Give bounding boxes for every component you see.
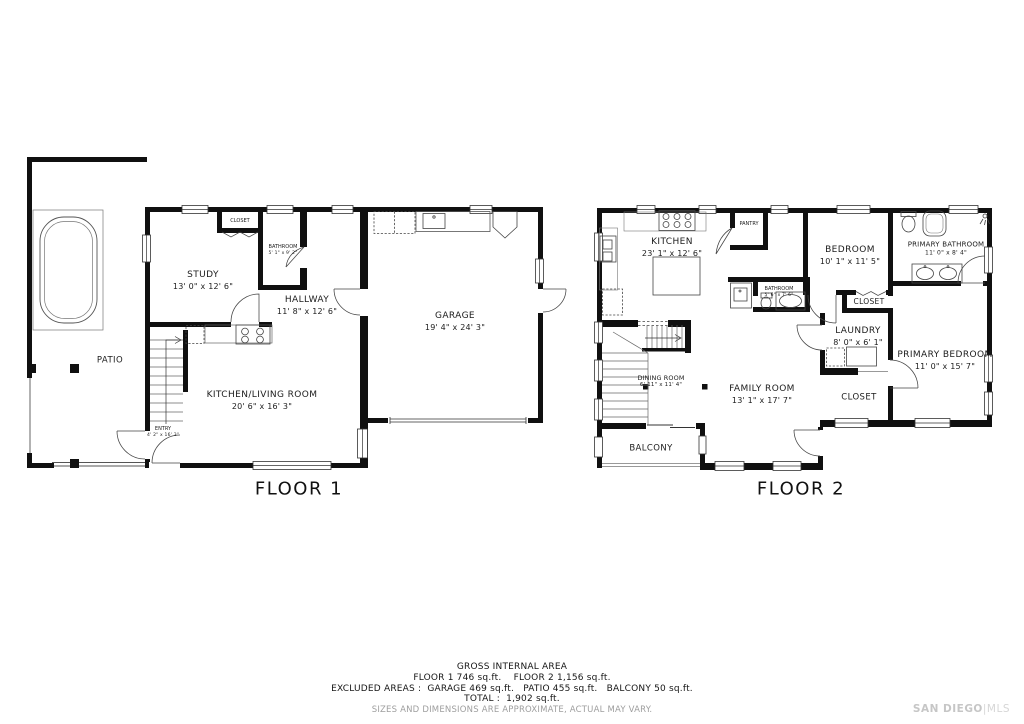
room-label-bathroom-f2: BATHROOM 5' 6" x 7' 6" [764,286,793,298]
garage-door [388,417,528,425]
room-label-primary-bedroom: PRIMARY BEDROOM 11' 0" x 15' 7" [897,350,992,372]
room-label-entry: ENTRY 4' 2" x 16' 3" [147,426,179,438]
room-label-pantry: PANTRY [739,221,758,228]
room-label-kitchen-living: KITCHEN/LIVING ROOM 20' 6" x 16' 3" [207,390,318,412]
room-label-balcony: BALCONY [629,443,672,454]
room-label-bedroom: BEDROOM 10' 1" x 11' 5" [820,245,880,267]
floor2-title: FLOOR 2 [757,477,845,500]
room-label-garage: GARAGE 19' 4" x 24' 3" [425,311,485,333]
hot-tub [33,210,103,330]
balcony-slider [646,423,696,430]
room-label-closet-bedroom: CLOSET [854,297,885,307]
room-label-closet-f1: CLOSET [230,218,249,225]
room-label-laundry: LAUNDRY 8' 0" x 6' 1" [833,326,883,348]
room-label-bathroom-f1: BATHROOM 5' 1" x 9' 2" [268,244,297,256]
floor1-window-midlines [147,210,540,466]
floor2-door-gaps [638,228,823,456]
floor1-stairs [150,337,183,425]
summary-title: GROSS INTERNAL AREA [0,662,1024,672]
floor1-title: FLOOR 1 [255,477,343,500]
washer-dryer [827,347,877,366]
mls-watermark: SAN DIEGO|MLS [913,703,1010,715]
summary-excluded-areas: EXCLUDED AREAS : GARAGE 469 sq.ft. PATIO… [0,684,1024,694]
floorplan-page: PATIO STUDY 13' 0" x 12' 6" CLOSET BATHR… [0,0,1024,724]
room-label-hallway: HALLWAY 11' 8" x 12' 6" [277,295,337,317]
floor1-windows [143,206,544,470]
floorplan-linework [0,0,1024,724]
floor1-kitchen-fixtures [186,325,272,344]
garage-fixtures [374,212,517,239]
room-label-kitchen-f2: KITCHEN 23' 1" x 12' 6" [642,237,702,259]
room-label-patio: PATIO [97,355,123,366]
room-label-closet-primary: CLOSET [841,392,876,403]
room-label-study: STUDY 13' 0" x 12' 6" [173,270,233,292]
room-label-family-room: FAMILY ROOM 13' 1" x 17' 7" [729,384,795,406]
summary-total: TOTAL : 1,902 sq.ft. [0,694,1024,704]
room-label-primary-bathroom: PRIMARY BATHROOM 11' 0" x 8' 4" [908,241,985,258]
floor2-kitchen-fixtures [600,211,707,316]
summary-disclaimer: SIZES AND DIMENSIONS ARE APPROXIMATE, AC… [0,705,1024,715]
summary-floor-areas: FLOOR 1 746 sq.ft. FLOOR 2 1,156 sq.ft. [0,673,1024,683]
room-label-dining-room: DINING ROOM 6' 11" x 11' 4" [637,374,684,390]
